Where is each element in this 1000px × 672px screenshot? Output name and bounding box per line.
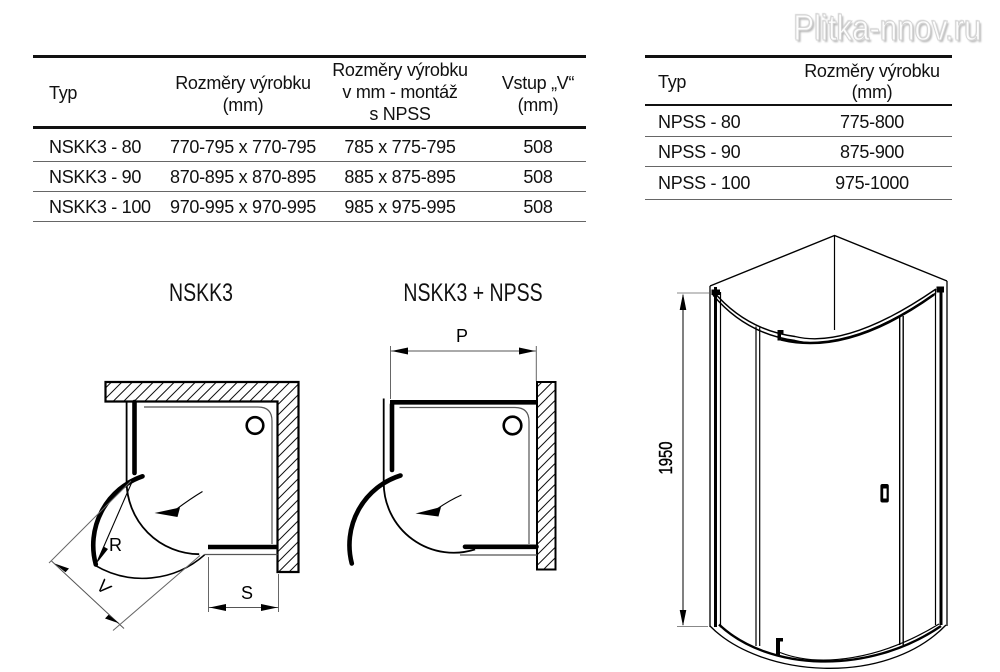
svg-text:V: V <box>93 576 116 599</box>
svg-text:P: P <box>456 326 468 346</box>
svg-text:S: S <box>241 583 253 603</box>
svg-text:1950: 1950 <box>656 442 676 475</box>
svg-text:R: R <box>109 535 122 555</box>
